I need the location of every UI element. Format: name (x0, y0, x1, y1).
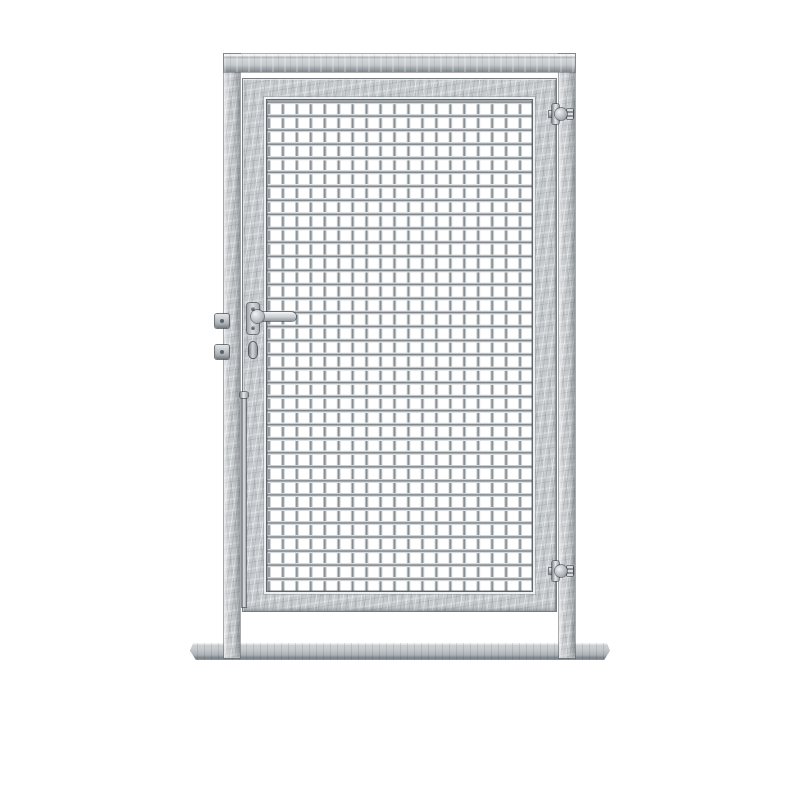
hinge-upper (549, 104, 573, 124)
drop-rod (242, 393, 246, 607)
mesh-panel (267, 100, 532, 591)
hinge-lower (549, 561, 573, 581)
lock-keep-lower (215, 345, 229, 359)
gate-leaf (243, 79, 556, 611)
hinge-nut (567, 566, 573, 576)
base-plate (190, 643, 610, 660)
lever-handle (252, 312, 296, 321)
cylinder-keyhole (249, 342, 257, 358)
top-rail (224, 54, 575, 72)
hinge-boss (555, 565, 567, 577)
hinge-nut (567, 109, 573, 119)
lock-keep-upper (215, 314, 229, 328)
hinge-boss (555, 108, 567, 120)
product-photo-stage (0, 0, 800, 800)
